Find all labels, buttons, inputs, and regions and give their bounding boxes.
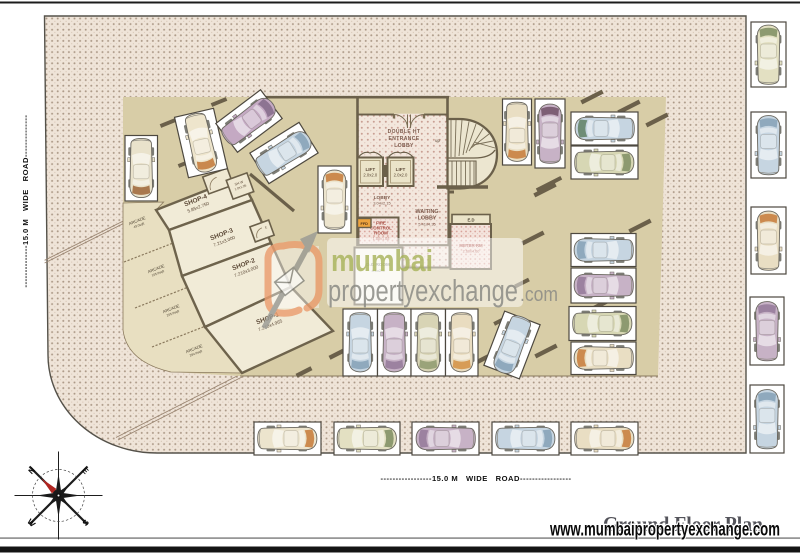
svg-text:5.41x4.35: 5.41x4.35: [418, 222, 436, 227]
svg-text:WAITING: WAITING: [415, 209, 438, 215]
svg-text:E.D: E.D: [468, 218, 475, 223]
svg-text:LOBBY: LOBBY: [394, 143, 414, 149]
svg-text:-----------------15.0 M WIDE: -----------------15.0 M WIDE ROAD-------…: [380, 474, 571, 483]
svg-text:mumbai: mumbai: [331, 243, 433, 278]
svg-text:www.mumbaipropertyexchange.com: www.mumbaipropertyexchange.com: [549, 520, 780, 541]
svg-text:3.04x2.15: 3.04x2.15: [373, 201, 391, 206]
svg-text:LIFT: LIFT: [365, 167, 375, 172]
svg-text:propertyexchange: propertyexchange: [328, 274, 518, 308]
svg-text:2.0x2.0: 2.0x2.0: [363, 173, 377, 178]
svg-text:ROOM: ROOM: [374, 231, 388, 236]
svg-text:.com: .com: [520, 284, 558, 306]
svg-text:--------------15.0 M WIDE: --------------15.0 M WIDE ROAD----------…: [21, 115, 30, 288]
svg-text:up: up: [435, 138, 440, 143]
svg-text:LIFT: LIFT: [396, 167, 406, 172]
svg-text:FFD: FFD: [361, 222, 369, 226]
svg-text:ENTRANCE: ENTRANCE: [389, 136, 420, 142]
svg-text:DOUBLE HT: DOUBLE HT: [388, 129, 421, 135]
svg-text:2.0x2.0: 2.0x2.0: [394, 173, 408, 178]
